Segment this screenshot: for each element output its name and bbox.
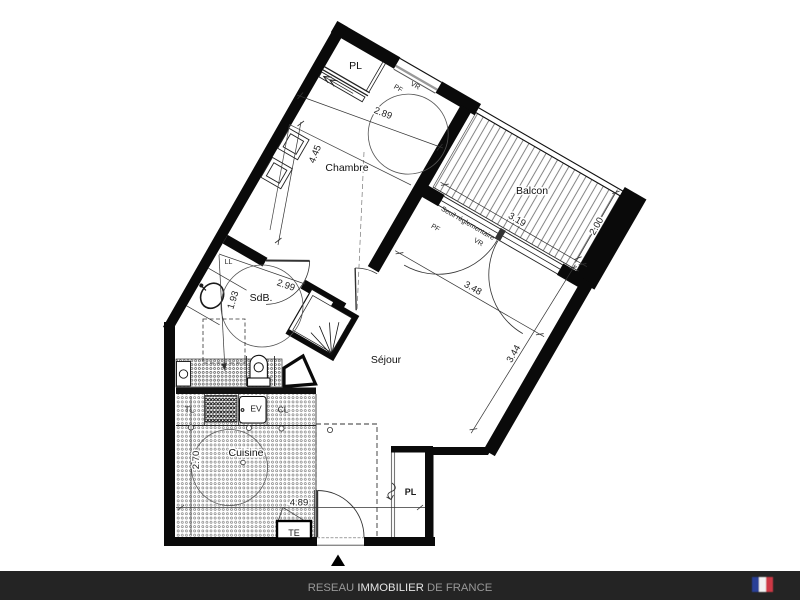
svg-text:PL: PL [405, 487, 417, 497]
svg-text:PL: PL [349, 60, 362, 72]
svg-text:Cuisine: Cuisine [228, 447, 263, 459]
svg-text:Chambre: Chambre [325, 162, 368, 174]
svg-text:LL: LL [225, 259, 233, 266]
svg-text:RESEAU IMMOBILIER DE FRANCE: RESEAU IMMOBILIER DE FRANCE [308, 582, 493, 594]
svg-text:Séjour: Séjour [371, 354, 402, 366]
svg-text:CL: CL [278, 405, 289, 415]
svg-text:2.70: 2.70 [191, 451, 202, 470]
svg-text:EV: EV [250, 404, 262, 414]
svg-text:4.89: 4.89 [290, 498, 309, 509]
svg-text:SdB.: SdB. [250, 292, 273, 304]
svg-text:TL: TL [185, 405, 195, 415]
svg-text:TE: TE [288, 528, 300, 538]
svg-text:Balcon: Balcon [516, 185, 548, 197]
